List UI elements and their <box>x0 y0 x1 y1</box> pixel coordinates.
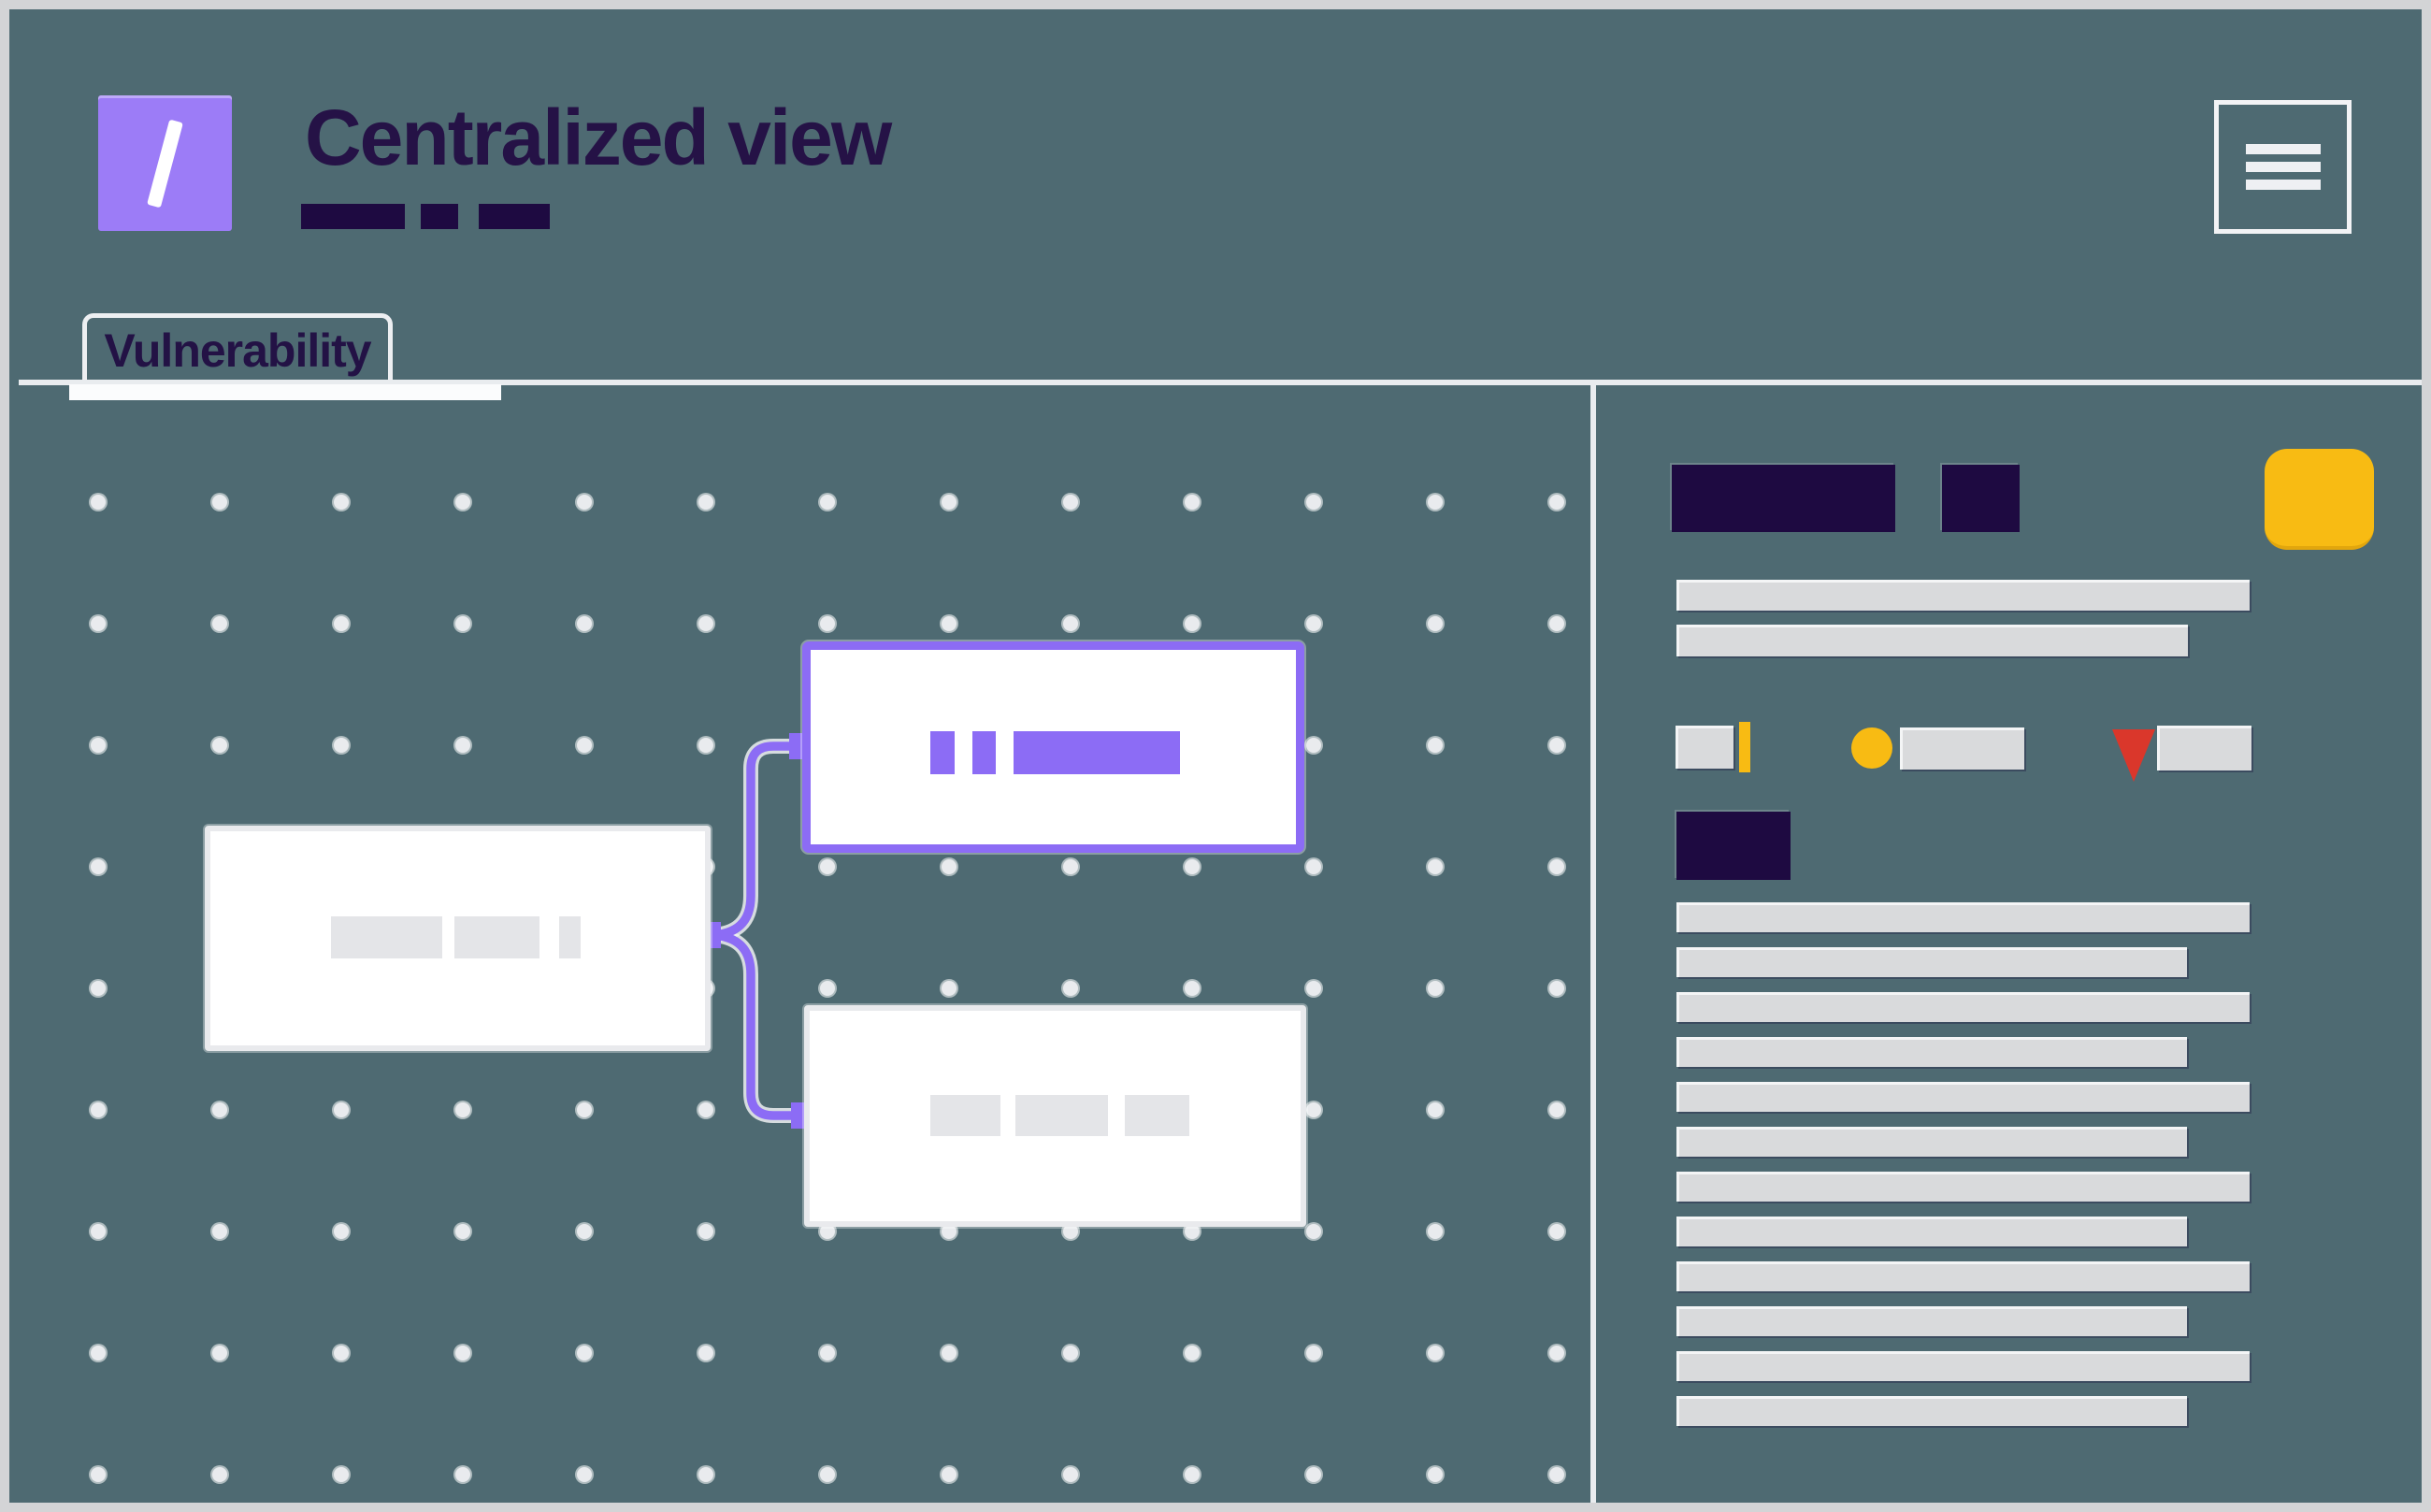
grid-dot <box>1063 1467 1078 1482</box>
tab-vulnerability[interactable]: Vulnerability <box>82 313 393 382</box>
panel-list-skeleton-bar <box>1676 1127 2187 1157</box>
grid-dot <box>1306 1224 1321 1239</box>
grid-dot <box>1185 495 1200 510</box>
panel-title-skeleton <box>1942 465 2020 532</box>
node-skeleton-bar <box>1125 1095 1189 1136</box>
grid-dot <box>455 738 470 753</box>
grid-dot <box>942 981 957 996</box>
grid-dot <box>1549 1467 1564 1482</box>
grid-dot <box>698 1224 713 1239</box>
grid-dot <box>1185 616 1200 631</box>
grid-dot <box>942 1346 957 1361</box>
grid-dot <box>1549 1102 1564 1117</box>
grid-dot <box>942 495 957 510</box>
flow-node-target-top-selected[interactable] <box>802 641 1304 853</box>
panel-divider <box>1590 385 1596 1512</box>
panel-list-skeleton-bar <box>1676 992 2250 1022</box>
panel-list-skeleton-bar <box>1676 1037 2187 1067</box>
node-skeleton-bar <box>1015 1095 1108 1136</box>
grid-dot <box>91 616 106 631</box>
app-window: Centralized view Vulnerability <box>0 0 2431 1512</box>
grid-dot <box>942 616 957 631</box>
grid-dot <box>1063 981 1078 996</box>
grid-dot <box>334 738 349 753</box>
grid-dot <box>212 1102 227 1117</box>
grid-dot <box>1306 738 1321 753</box>
grid-dot <box>820 495 835 510</box>
grid-dot <box>1185 859 1200 874</box>
grid-dot <box>212 738 227 753</box>
grid-dot <box>1549 738 1564 753</box>
grid-dot <box>455 1346 470 1361</box>
grid-dot <box>577 1467 592 1482</box>
app-logo <box>98 95 232 231</box>
legend-label-skeleton <box>2157 726 2251 770</box>
grid-dot <box>1428 1102 1443 1117</box>
grid-dot <box>91 495 106 510</box>
grid-dot <box>820 616 835 631</box>
grid-dot <box>212 616 227 631</box>
grid-dot <box>455 1224 470 1239</box>
grid-dot <box>1063 495 1078 510</box>
grid-dot <box>91 738 106 753</box>
grid-dot <box>577 495 592 510</box>
grid-dot <box>1428 1467 1443 1482</box>
node-skeleton-bar <box>454 916 539 958</box>
grid-dot <box>334 1224 349 1239</box>
grid-dot <box>1428 616 1443 631</box>
grid-dot <box>1549 1224 1564 1239</box>
flow-node-target-bottom[interactable] <box>804 1005 1306 1227</box>
page-title: Centralized view <box>305 98 890 177</box>
grid-dot <box>1549 1346 1564 1361</box>
node-skeleton-bar <box>972 731 996 774</box>
panel-list-skeleton-bar <box>1676 902 2250 932</box>
grid-dot <box>577 738 592 753</box>
grid-dot <box>1063 1346 1078 1361</box>
node-skeleton-bar <box>559 916 581 958</box>
grid-dot <box>1428 1224 1443 1239</box>
panel-text-skeleton <box>1676 625 2188 656</box>
grid-dot <box>334 1346 349 1361</box>
red-triangle-marker-icon <box>2112 729 2155 782</box>
grid-dot <box>820 1467 835 1482</box>
grid-dot <box>91 1102 106 1117</box>
slash-logo-icon <box>147 119 183 208</box>
hamburger-icon <box>2246 144 2321 154</box>
grid-dot <box>1306 981 1321 996</box>
section-header-skeleton <box>1676 812 1791 880</box>
grid-dot <box>91 1346 106 1361</box>
hamburger-menu-button[interactable] <box>2214 100 2352 234</box>
grid-dot <box>91 1467 106 1482</box>
panel-list-skeleton-bar <box>1676 1172 2250 1202</box>
yellow-circle-marker-icon <box>1851 727 1892 769</box>
grid-dot <box>212 1346 227 1361</box>
grid-dot <box>820 859 835 874</box>
grid-dot <box>1306 859 1321 874</box>
grid-dot <box>698 1102 713 1117</box>
subtitle-skeleton-bar <box>479 204 550 229</box>
grid-dot <box>212 495 227 510</box>
grid-dot <box>334 616 349 631</box>
grid-dot <box>1549 981 1564 996</box>
subtitle-skeleton-bar <box>421 204 458 229</box>
grid-dot <box>1549 616 1564 631</box>
panel-list-skeleton-bar <box>1676 947 2187 977</box>
grid-dot <box>212 1224 227 1239</box>
grid-dot <box>91 859 106 874</box>
grid-dot <box>455 1467 470 1482</box>
grid-dot <box>942 1467 957 1482</box>
grid-dot <box>698 1467 713 1482</box>
grid-dot <box>1549 495 1564 510</box>
grid-dot <box>212 1467 227 1482</box>
grid-dot <box>698 616 713 631</box>
panel-text-skeleton <box>1676 580 2250 611</box>
hamburger-icon <box>2246 180 2321 190</box>
grid-dot <box>577 1346 592 1361</box>
panel-list-skeleton-bar <box>1676 1396 2187 1426</box>
panel-list-skeleton-bar <box>1676 1082 2250 1112</box>
grid-dot <box>334 1102 349 1117</box>
panel-list-skeleton-bar <box>1676 1261 2250 1291</box>
grid-dot <box>698 1346 713 1361</box>
hamburger-icon <box>2246 162 2321 172</box>
grid-dot <box>1185 981 1200 996</box>
flow-node-source[interactable] <box>205 826 711 1051</box>
grid-dot <box>820 1346 835 1361</box>
grid-dot <box>1306 1346 1321 1361</box>
grid-dot <box>698 495 713 510</box>
grid-dot <box>1306 616 1321 631</box>
grid-dot <box>1428 738 1443 753</box>
grid-dot <box>1063 616 1078 631</box>
grid-dot <box>1063 859 1078 874</box>
subtitle-skeleton-bar <box>301 204 405 229</box>
node-skeleton-bar <box>930 731 955 774</box>
yellow-bar-marker-icon <box>1739 722 1750 772</box>
grid-dot <box>1428 981 1443 996</box>
grid-dot <box>698 738 713 753</box>
grid-dot <box>577 616 592 631</box>
grid-dot <box>91 1224 106 1239</box>
grid-dot <box>455 616 470 631</box>
grid-dot <box>334 495 349 510</box>
status-badge[interactable] <box>2265 449 2374 550</box>
grid-dot <box>1185 1346 1200 1361</box>
grid-dot <box>577 1102 592 1117</box>
legend-label-skeleton <box>1900 727 2024 770</box>
grid-dot <box>1428 1346 1443 1361</box>
grid-dot <box>577 1224 592 1239</box>
grid-dot <box>1428 859 1443 874</box>
node-skeleton-bar <box>1014 731 1180 774</box>
grid-dot <box>1185 1467 1200 1482</box>
panel-list-skeleton-bar <box>1676 1217 2187 1246</box>
grid-dot <box>455 495 470 510</box>
grid-dot <box>820 981 835 996</box>
grid-dot <box>1428 495 1443 510</box>
grid-dot <box>1549 859 1564 874</box>
node-skeleton-bar <box>930 1095 1000 1136</box>
legend-label-skeleton <box>1676 726 1733 769</box>
panel-list-skeleton-bar <box>1676 1306 2187 1336</box>
node-skeleton-bar <box>331 916 442 958</box>
grid-dot <box>334 1467 349 1482</box>
grid-dot <box>1306 495 1321 510</box>
grid-dot <box>1306 1102 1321 1117</box>
grid-dot <box>1306 1467 1321 1482</box>
panel-title-skeleton <box>1672 465 1895 532</box>
grid-dot <box>455 1102 470 1117</box>
grid-dot <box>91 981 106 996</box>
panel-list-skeleton-bar <box>1676 1351 2250 1381</box>
grid-dot <box>942 859 957 874</box>
